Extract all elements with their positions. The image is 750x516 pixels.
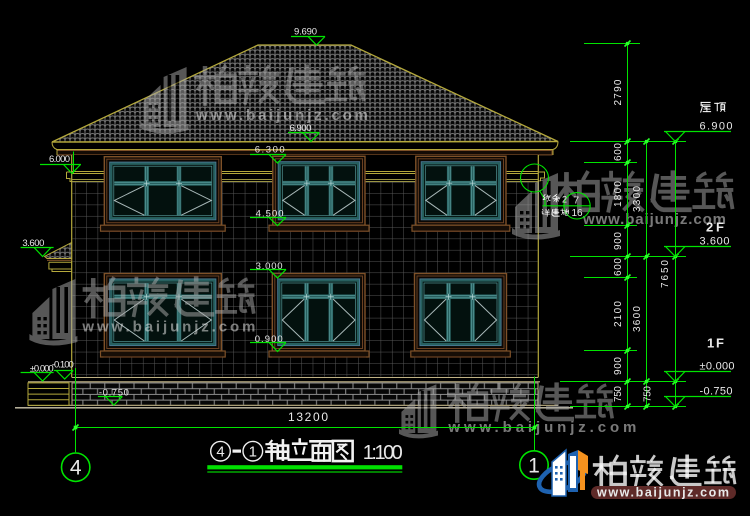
svg-text:3.600: 3.600 xyxy=(700,236,730,248)
svg-text:4: 4 xyxy=(216,444,224,461)
svg-text:2790: 2790 xyxy=(613,79,624,105)
svg-text:6.000: 6.000 xyxy=(49,154,70,165)
svg-text:1: 1 xyxy=(249,444,257,461)
svg-text:600: 600 xyxy=(613,258,624,276)
svg-text:7650: 7650 xyxy=(660,260,671,288)
svg-text:1F: 1F xyxy=(707,336,724,351)
svg-text:750: 750 xyxy=(613,386,624,402)
svg-text:-0.100: -0.100 xyxy=(52,360,74,371)
svg-text:1:100: 1:100 xyxy=(363,442,403,464)
svg-text:13200: 13200 xyxy=(288,410,328,424)
svg-text:1: 1 xyxy=(528,455,540,478)
svg-text:6.900: 6.900 xyxy=(700,121,733,133)
svg-text:3300: 3300 xyxy=(632,186,643,212)
svg-text:4: 4 xyxy=(70,457,82,480)
svg-text:3600: 3600 xyxy=(632,306,643,332)
svg-text:0.900: 0.900 xyxy=(255,334,283,345)
svg-text:600: 600 xyxy=(613,143,624,161)
svg-text:7: 7 xyxy=(574,196,580,207)
svg-text:9.690: 9.690 xyxy=(294,27,317,38)
svg-text:±0.000: ±0.000 xyxy=(700,361,735,373)
svg-text:16: 16 xyxy=(572,208,584,219)
svg-text:-0.750: -0.750 xyxy=(700,386,733,398)
svg-text:2: 2 xyxy=(562,194,567,204)
svg-text:1800: 1800 xyxy=(613,181,624,207)
svg-text:900: 900 xyxy=(613,357,624,375)
svg-text:750: 750 xyxy=(643,386,654,402)
svg-text:900: 900 xyxy=(613,232,624,250)
svg-text:2100: 2100 xyxy=(613,301,624,327)
